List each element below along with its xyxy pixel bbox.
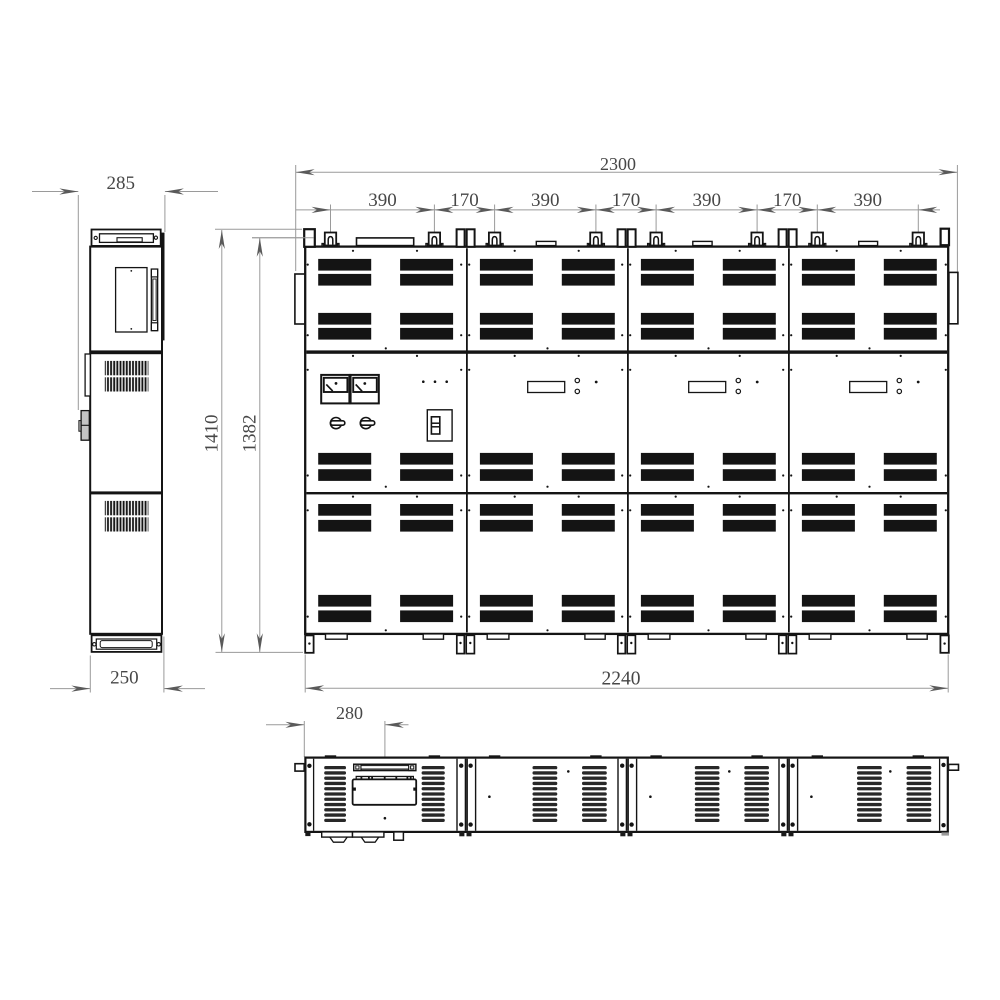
svg-text:285: 285	[107, 173, 136, 194]
svg-text:280: 280	[336, 703, 363, 723]
svg-text:250: 250	[110, 668, 139, 689]
svg-text:170: 170	[773, 190, 802, 211]
svg-text:390: 390	[854, 190, 883, 211]
svg-text:170: 170	[450, 190, 479, 211]
svg-text:390: 390	[693, 190, 722, 211]
svg-text:2300: 2300	[600, 154, 636, 174]
svg-text:1382: 1382	[240, 415, 261, 453]
svg-text:390: 390	[531, 190, 560, 211]
svg-text:1410: 1410	[201, 415, 222, 453]
svg-text:2240: 2240	[602, 668, 641, 689]
svg-text:390: 390	[368, 190, 397, 211]
svg-text:170: 170	[612, 190, 641, 211]
